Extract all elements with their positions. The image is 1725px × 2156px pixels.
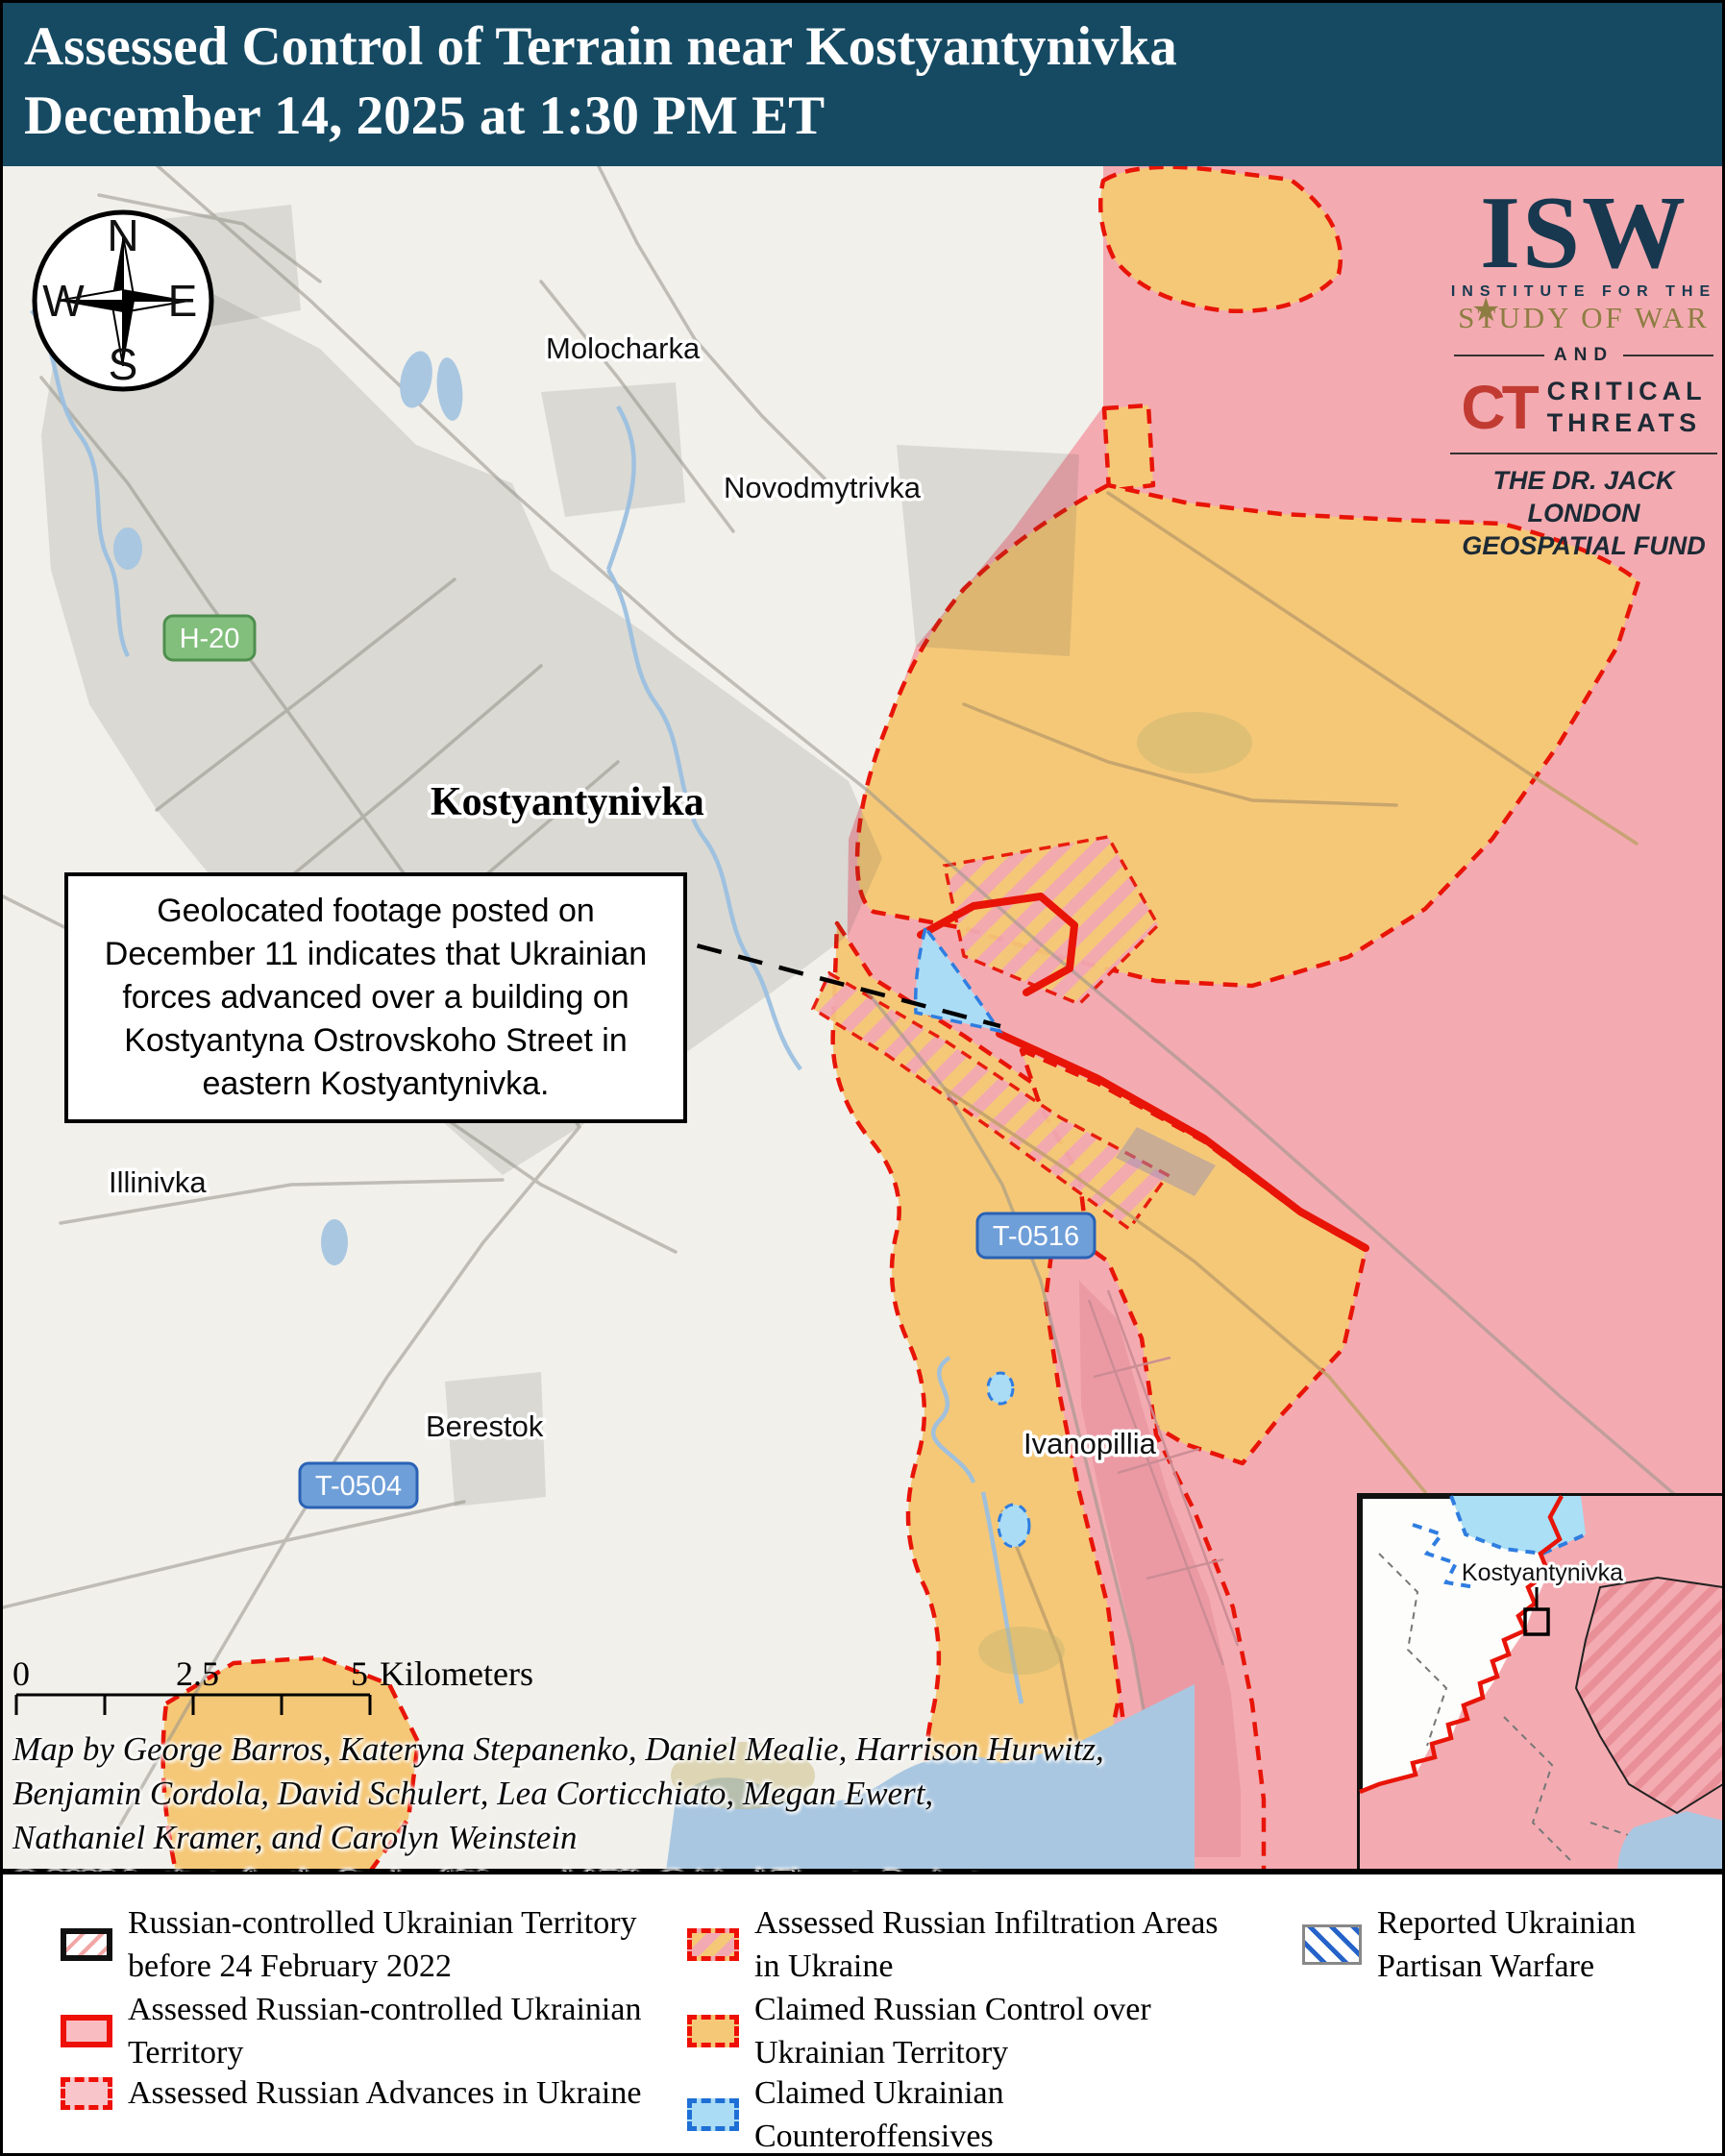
fund-line1: THE DR. JACK LONDON: [1444, 464, 1723, 529]
legend-item-claimed-russian: Claimed Russian Control over Ukrainian T…: [687, 1988, 1244, 2074]
legend-label: Assessed Russian Infiltration Areas in U…: [754, 1901, 1244, 1988]
place-label-molocharka: Molocharka: [546, 331, 701, 365]
and-divider: AND: [1454, 345, 1713, 366]
legend-label: Assessed Russian-controlled Ukrainian Te…: [128, 1988, 680, 2074]
place-label-illinivka: Illinivka: [109, 1165, 207, 1199]
road-badge-h20: H-20: [164, 616, 255, 660]
scale-bar: 0 2.5 5 Kilometers: [12, 1654, 589, 1722]
scale-five: 5: [351, 1654, 368, 1694]
inset-map: Kostyantynivka: [1360, 1496, 1723, 1870]
legend-item-controlled: Assessed Russian-controlled Ukrainian Te…: [61, 1988, 680, 2074]
threats-text: THREATS: [1547, 408, 1702, 437]
annotation-callout: Geolocated footage posted on December 11…: [64, 872, 687, 1123]
scale-unit: Kilometers: [380, 1654, 533, 1694]
legend-swatch-advances: [61, 2077, 112, 2110]
legend-swatch-counteroffensives: [687, 2098, 739, 2131]
urban-east-suburb: [897, 445, 1079, 656]
fund-line2: GEOSPATIAL FUND: [1444, 529, 1723, 562]
place-label-kostyantynivka: Kostyantynivka: [431, 780, 704, 824]
legend: Russian-controlled Ukrainian Territory b…: [3, 1872, 1725, 2156]
scale-mid: 2.5: [176, 1654, 219, 1694]
legend-item-pre2022: Russian-controlled Ukrainian Territory b…: [61, 1901, 680, 1988]
critical-text: CRITICAL: [1547, 377, 1707, 405]
legend-item-advances: Assessed Russian Advances in Ukraine: [61, 2071, 680, 2115]
compass-s: S: [109, 339, 138, 389]
map-title: Assessed Control of Terrain near Kostyan…: [3, 3, 1722, 82]
annotation-text: Geolocated footage posted on December 11…: [105, 893, 647, 1102]
compass-e: E: [168, 276, 198, 326]
road-badge-t0504-label: T-0504: [315, 1471, 402, 1502]
legend-item-infiltration: Assessed Russian Infiltration Areas in U…: [687, 1901, 1244, 1988]
map-subtitle: December 14, 2025 at 1:30 PM ET: [3, 82, 1722, 151]
legend-swatch-pre2022: [61, 1928, 112, 1961]
road-badge-t0504: T-0504: [300, 1463, 417, 1507]
legend-swatch-controlled: [61, 2015, 112, 2047]
legend-label: Claimed Ukrainian Counteroffensives: [754, 2071, 1244, 2156]
scale-bar-ticks: [12, 1692, 378, 1717]
legend-label: Russian-controlled Ukrainian Territory b…: [128, 1901, 680, 1988]
legend-swatch-infiltration: [687, 1928, 739, 1961]
legend-item-partisan: Reported Ukrainian Partisan Warfare: [1302, 1901, 1694, 1988]
scale-zero: 0: [12, 1654, 30, 1694]
credits-line2: Benjamin Cordola, David Schulert, Lea Co…: [12, 1772, 1104, 1816]
legend-swatch-claimed-russian: [687, 2015, 739, 2047]
inset-label: Kostyantynivka: [1462, 1559, 1623, 1586]
and-text: AND: [1554, 345, 1614, 366]
place-label-novodmytrivka: Novodmytrivka: [724, 471, 922, 504]
credits-line1: Map by George Barros, Kateryna Stepanenk…: [12, 1727, 1104, 1772]
claimed-area-chimney: [1104, 405, 1153, 491]
map-canvas: H-20 T-0516 T-0504 Molocharka Novodmytri…: [3, 166, 1725, 1872]
urban-molocharka: [541, 382, 685, 517]
road-badge-t0516-label: T-0516: [993, 1221, 1079, 1252]
title-bar: Assessed Control of Terrain near Kostyan…: [3, 3, 1722, 166]
place-label-berestok: Berestok: [426, 1409, 544, 1443]
legend-label: Reported Ukrainian Partisan Warfare: [1377, 1901, 1694, 1988]
legend-swatch-partisan: [1302, 1924, 1362, 1965]
credits-line3: Nathaniel Kramer, and Carolyn Weinstein: [12, 1816, 1104, 1860]
legend-item-counteroffensives: Claimed Ukrainian Counteroffensives: [687, 2071, 1244, 2156]
logo-block: ISW ★ INSTITUTE FOR THE STUDY OF WAR AND…: [1444, 185, 1723, 562]
compass-n: N: [107, 210, 138, 260]
road-badge-h20-label: H-20: [180, 624, 240, 654]
critical-threats-logo: CT CRITICAL THREATS: [1444, 372, 1723, 443]
isw-star-icon: ★: [1471, 291, 1500, 330]
divider-line: [1450, 453, 1717, 454]
road-badge-t0516: T-0516: [977, 1213, 1095, 1258]
legend-label: Assessed Russian Advances in Ukraine: [128, 2071, 680, 2115]
legend-label: Claimed Russian Control over Ukrainian T…: [754, 1988, 1244, 2074]
ct-icon: CT: [1461, 372, 1535, 443]
compass-w: W: [42, 276, 85, 326]
place-label-ivanopillia: Ivanopillia: [1023, 1427, 1157, 1460]
isw-map-screenshot: Assessed Control of Terrain near Kostyan…: [0, 0, 1725, 2156]
isw-logo: ISW: [1444, 185, 1723, 282]
compass-rose: N E S W: [35, 210, 211, 389]
